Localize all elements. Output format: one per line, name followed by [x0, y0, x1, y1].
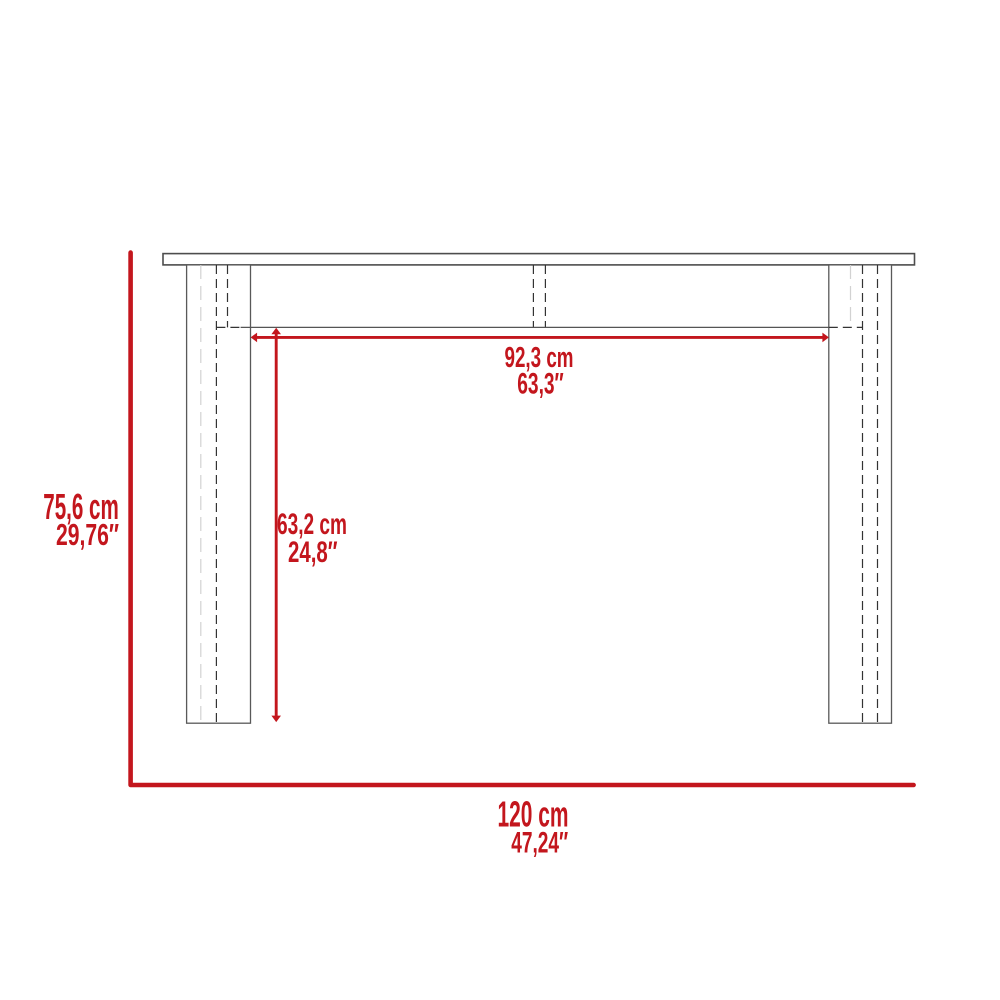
- svg-text:63,3″: 63,3″: [517, 368, 564, 401]
- svg-text:24,8″: 24,8″: [288, 536, 338, 569]
- svg-text:47,24″: 47,24″: [511, 826, 568, 859]
- svg-text:29,76″: 29,76″: [56, 517, 119, 552]
